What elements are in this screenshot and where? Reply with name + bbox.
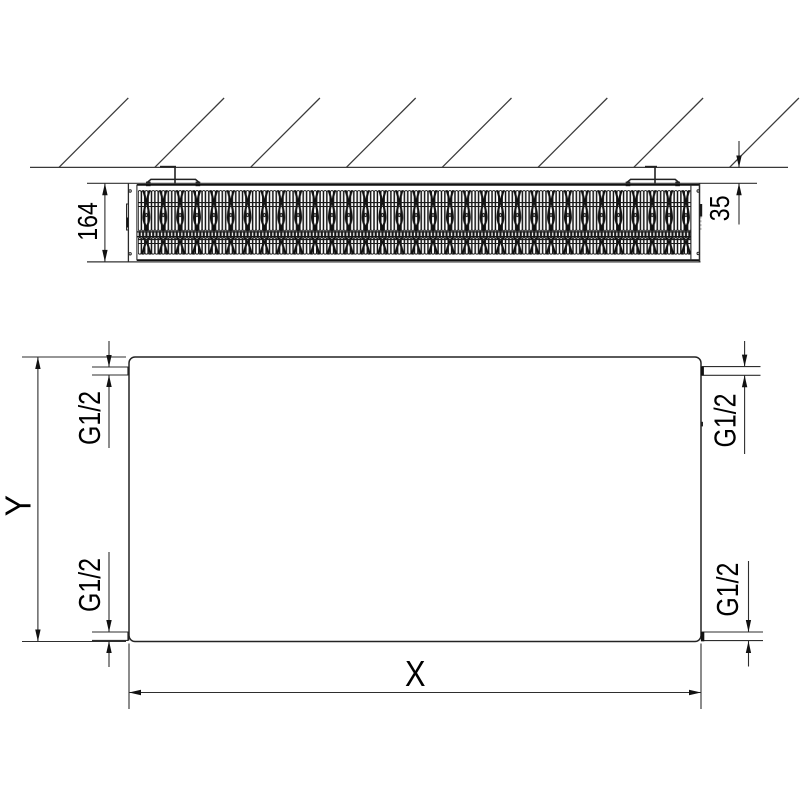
svg-text:G1/2: G1/2 [72, 558, 107, 612]
svg-text:G1/2: G1/2 [72, 391, 107, 445]
svg-text:X: X [405, 653, 426, 694]
svg-text:G1/2: G1/2 [710, 563, 745, 617]
svg-text:G1/2: G1/2 [708, 394, 743, 448]
svg-text:35: 35 [704, 195, 735, 221]
svg-text:Y: Y [0, 495, 39, 516]
svg-text:164: 164 [72, 202, 103, 241]
